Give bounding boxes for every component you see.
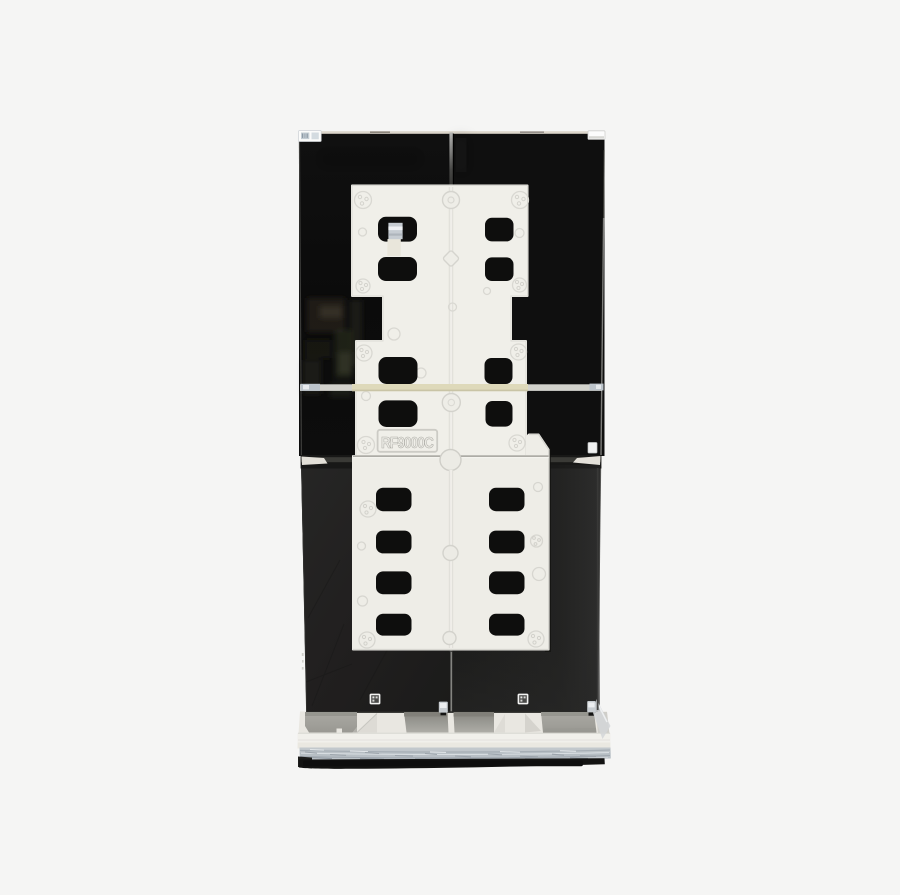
svg-text:RF9000C: RF9000C	[381, 435, 434, 452]
